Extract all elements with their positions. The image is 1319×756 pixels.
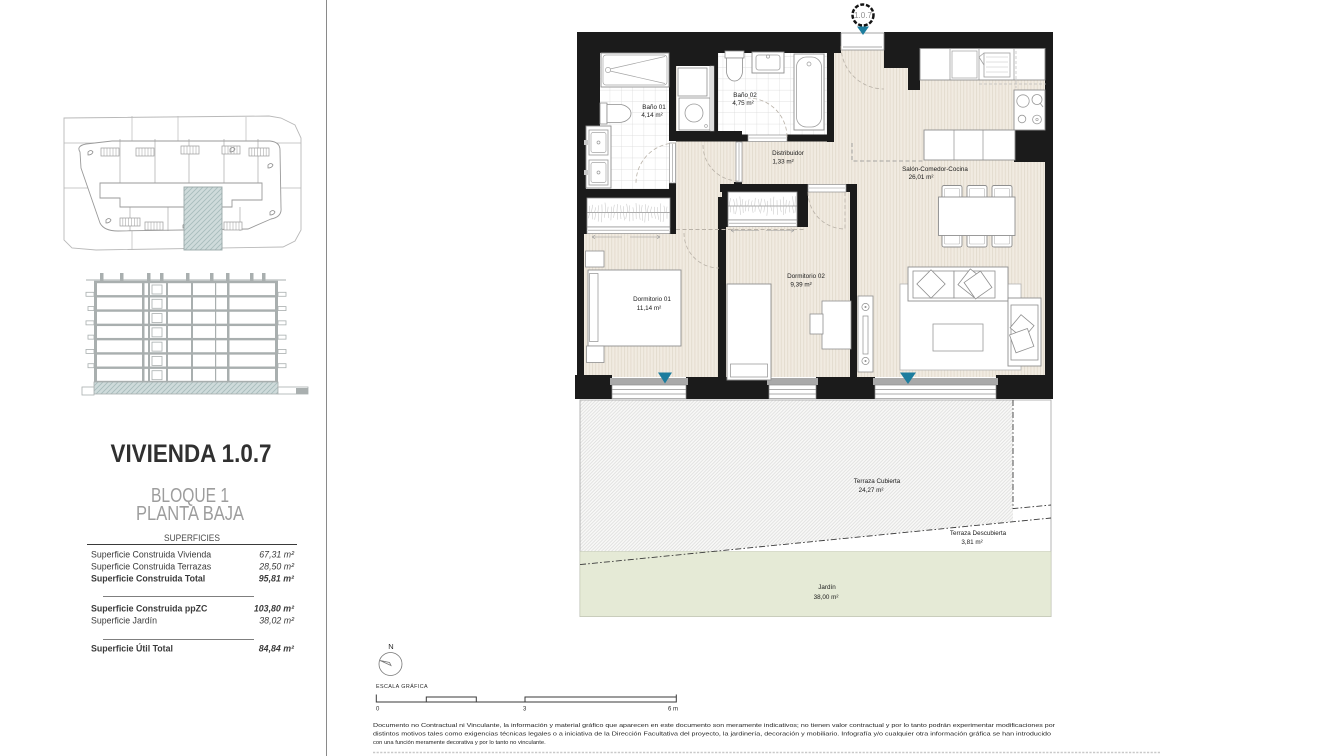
svg-text:6 m: 6 m — [668, 707, 678, 713]
svg-text:Baño 02: Baño 02 — [733, 92, 757, 99]
svg-text:SUPERFICIES: SUPERFICIES — [164, 533, 220, 543]
svg-text:3,81 m²: 3,81 m² — [961, 539, 982, 546]
svg-text:Documento no Contractual ni Vi: Documento no Contractual ni Vinculante, … — [373, 723, 1055, 729]
svg-text:Distribuidor: Distribuidor — [772, 150, 804, 157]
svg-text:24,27 m²: 24,27 m² — [859, 487, 884, 494]
svg-text:84,84 m²: 84,84 m² — [259, 644, 295, 654]
svg-text:VIVIENDA 1.0.7: VIVIENDA 1.0.7 — [111, 440, 272, 468]
svg-text:38,00 m²: 38,00 m² — [814, 594, 839, 601]
svg-text:distintos motivos tales como e: distintos motivos tales como exigencias … — [373, 732, 1051, 738]
svg-text:67,31 m²: 67,31 m² — [259, 550, 295, 560]
svg-text:28,50 m²: 28,50 m² — [258, 562, 295, 572]
svg-text:Superficie Jardín: Superficie Jardín — [91, 616, 157, 626]
svg-text:Superficie Construida Terrazas: Superficie Construida Terrazas — [91, 562, 212, 572]
svg-text:Superficie Construida Total: Superficie Construida Total — [91, 574, 205, 584]
svg-text:N: N — [388, 642, 393, 651]
svg-text:1.0.7: 1.0.7 — [854, 11, 872, 20]
svg-text:Dormitorio 01: Dormitorio 01 — [633, 296, 671, 303]
svg-text:4,14 m²: 4,14 m² — [641, 112, 662, 119]
svg-text:Terraza Descubierta: Terraza Descubierta — [950, 530, 1007, 537]
svg-text:con una función meramente deco: con una función meramente decorativa y p… — [373, 740, 546, 746]
svg-text:ESCALA GRÁFICA: ESCALA GRÁFICA — [376, 683, 428, 690]
svg-text:PLANTA BAJA: PLANTA BAJA — [136, 503, 245, 525]
svg-text:Superficie Construida ppZC: Superficie Construida ppZC — [91, 604, 208, 614]
svg-text:Salón-Comedor-Cocina: Salón-Comedor-Cocina — [902, 166, 968, 173]
svg-text:26,01 m²: 26,01 m² — [909, 174, 934, 181]
svg-text:95,81 m²: 95,81 m² — [259, 574, 295, 584]
svg-text:Superficie Útil Total: Superficie Útil Total — [91, 643, 173, 654]
svg-text:11,14 m²: 11,14 m² — [637, 305, 661, 312]
svg-text:4,75 m²: 4,75 m² — [732, 100, 753, 107]
svg-text:Dormitorio 02: Dormitorio 02 — [787, 273, 825, 280]
svg-text:Terraza Cubierta: Terraza Cubierta — [854, 478, 901, 485]
svg-text:103,80 m²: 103,80 m² — [254, 604, 295, 614]
svg-text:Baño 01: Baño 01 — [642, 104, 666, 111]
svg-text:Jardín: Jardín — [818, 584, 836, 591]
svg-text:38,02 m²: 38,02 m² — [259, 616, 295, 626]
svg-text:Superficie Construida Vivienda: Superficie Construida Vivienda — [91, 550, 211, 560]
svg-text:9,39 m²: 9,39 m² — [790, 282, 811, 289]
svg-text:1,33 m²: 1,33 m² — [772, 159, 793, 166]
